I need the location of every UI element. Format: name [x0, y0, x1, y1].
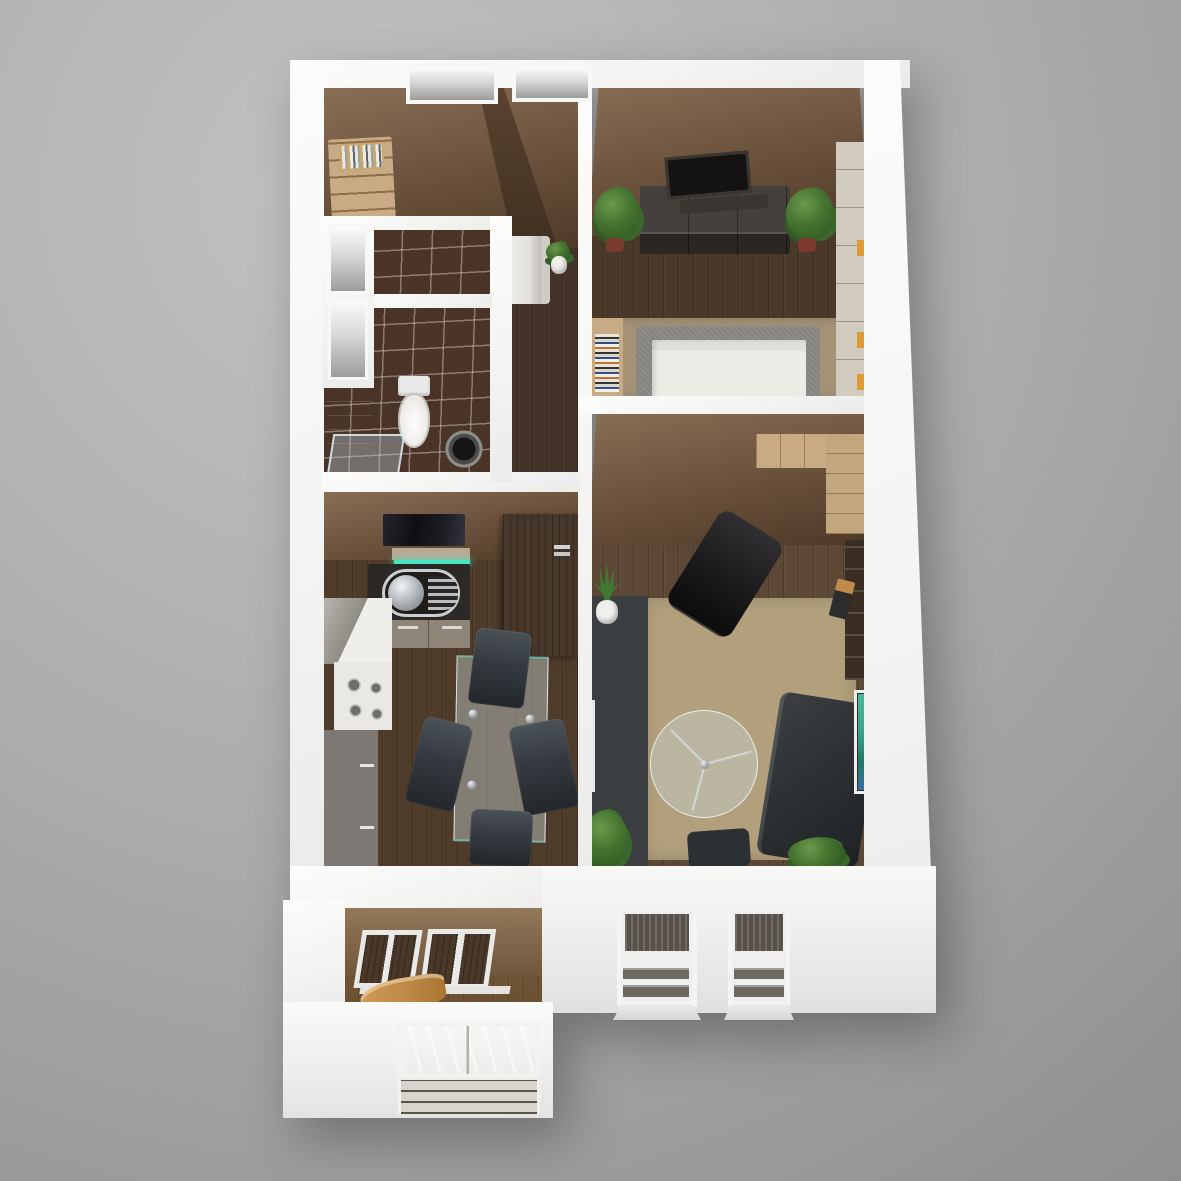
apartment-floor-plan — [0, 0, 1181, 1181]
table-spoke — [670, 729, 705, 764]
bedside-books — [595, 334, 619, 392]
north-wall — [290, 60, 910, 88]
west-wall — [290, 60, 324, 906]
south-window-west — [617, 908, 697, 1006]
table-leg — [469, 709, 478, 718]
bath-east-wall — [490, 216, 512, 482]
sink-drainer — [428, 576, 458, 610]
north-opening-west — [406, 64, 498, 104]
balcony-facade-window — [398, 1022, 540, 1078]
dining-chair-south — [469, 808, 534, 867]
railing-slat — [734, 968, 784, 979]
washing-machine — [438, 396, 490, 474]
cooktop — [334, 662, 392, 730]
south-window-west-reveal — [613, 1004, 701, 1020]
table-leg — [467, 780, 476, 789]
bed-mattress — [652, 340, 806, 402]
round-glass-table — [650, 710, 758, 818]
sideboard-plant-pot — [596, 600, 618, 624]
table-spoke — [705, 751, 752, 765]
window-glass — [625, 914, 689, 956]
bedroom-plant-west-pot — [606, 238, 624, 252]
dining-chair-north — [468, 627, 533, 709]
balcony-facade-railing — [398, 1080, 540, 1114]
north-opening-east — [512, 64, 592, 102]
bedroom-plant-east — [786, 188, 834, 240]
table-hub — [700, 760, 709, 769]
studio-backdrop — [0, 0, 1181, 1181]
door-handle — [554, 545, 570, 549]
bedroom-plant-west — [594, 188, 640, 240]
bedroom-plant-east-pot — [798, 238, 816, 252]
kitchen-counter-run — [322, 730, 378, 868]
south-window-east-reveal — [724, 1004, 794, 1020]
shower-glass-screen — [327, 434, 406, 476]
railing-slat — [623, 968, 689, 979]
wc-floor-tiles — [372, 226, 492, 298]
wall-niche-lower — [328, 298, 368, 380]
table-spoke — [692, 764, 706, 811]
wc-bath-wall — [368, 294, 492, 308]
ottoman — [687, 828, 751, 870]
sink-bowl — [388, 575, 424, 611]
bedroom-wardrobe-panels — [836, 142, 866, 398]
railing-slat — [734, 985, 784, 997]
central-wall — [578, 85, 592, 870]
bedroom-tv — [664, 150, 751, 199]
wall-niche-upper — [328, 224, 368, 294]
cooker-hood — [383, 514, 465, 546]
storage-books — [339, 142, 384, 171]
kitchen-drawer-unit — [386, 620, 470, 648]
kitchen-tall-cabinet — [322, 598, 392, 664]
bedroom-living-wall — [578, 396, 870, 414]
kitchen-shelf — [392, 548, 470, 560]
south-window-east — [728, 908, 790, 1006]
hall-plant-pot — [551, 256, 567, 274]
hall-kitchen-wall — [322, 472, 580, 492]
railing-slat — [623, 985, 689, 997]
window-glass — [735, 914, 783, 956]
balcony-west-wall — [283, 900, 345, 1012]
